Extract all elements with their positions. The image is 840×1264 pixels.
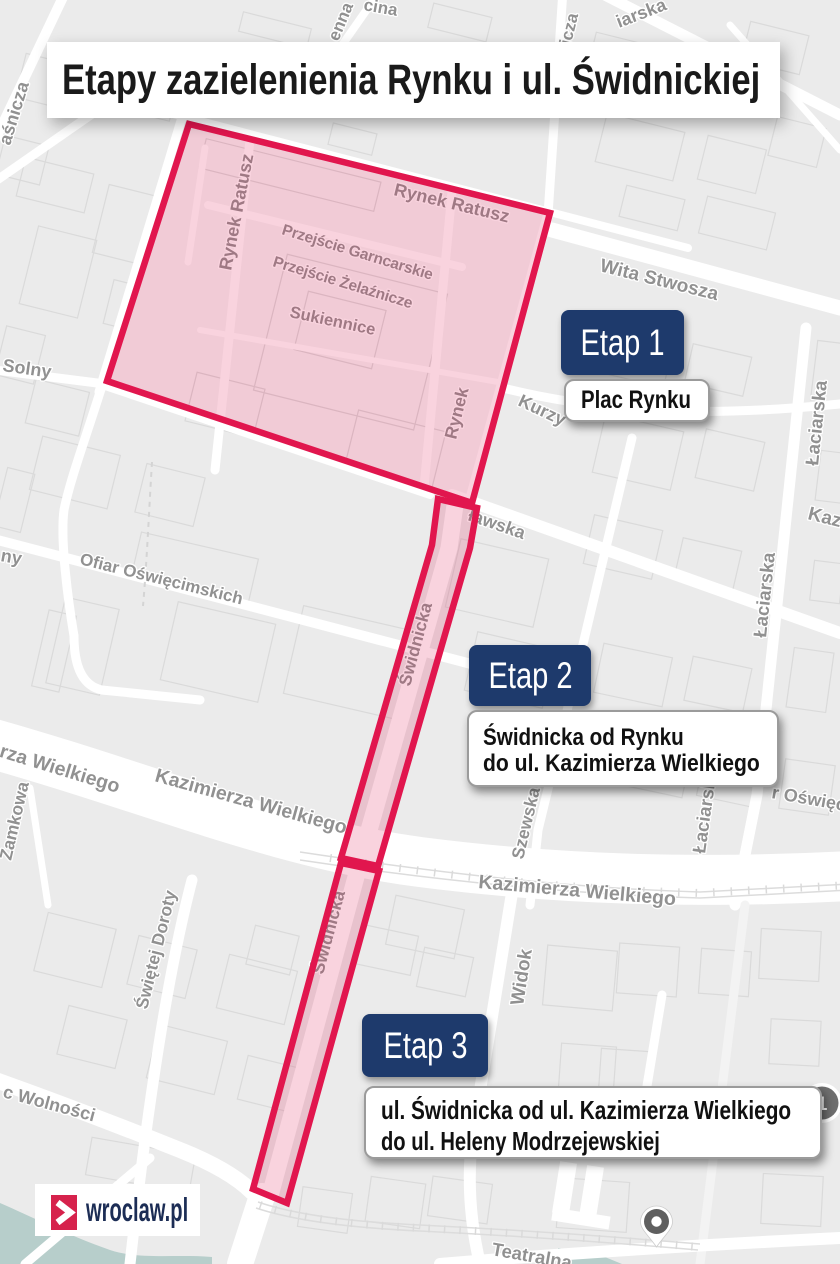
svg-text:ny: ny: [0, 545, 23, 568]
